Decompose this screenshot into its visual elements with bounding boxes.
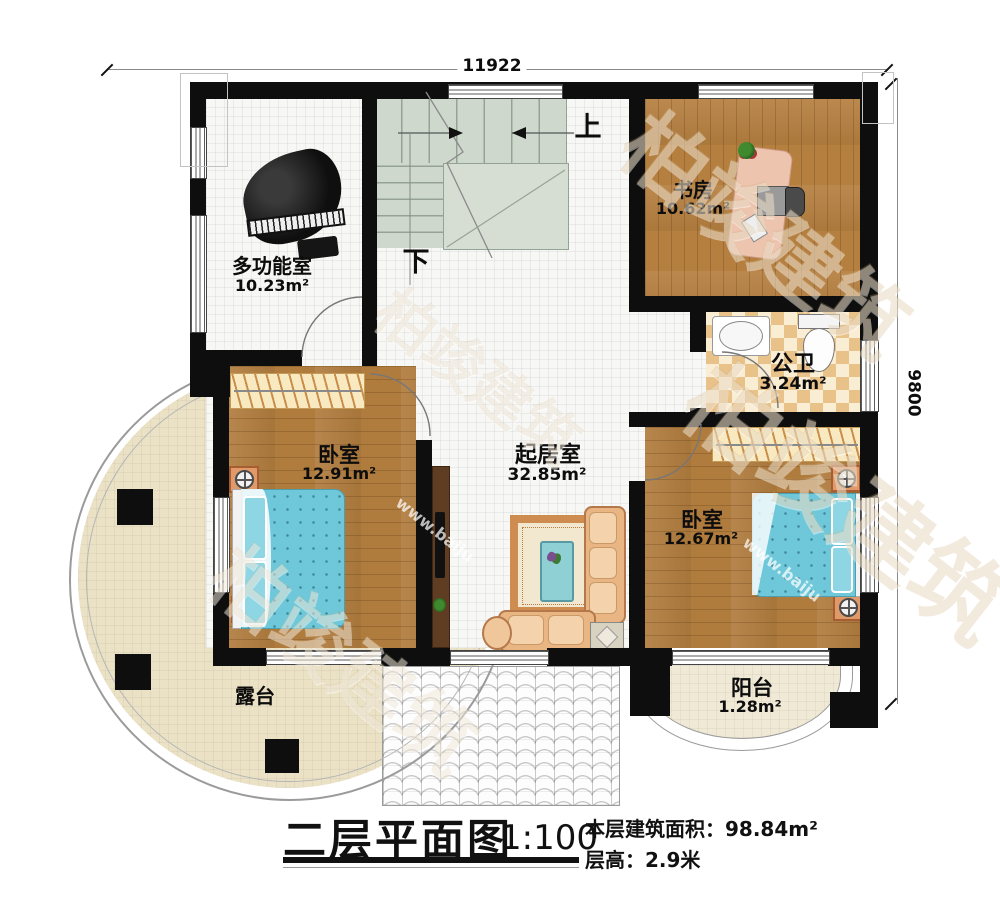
door-arcs-layer [0,0,1000,914]
stair-landing-diagonal [447,170,565,247]
room-area-living: 32.85m² [508,467,587,485]
stair-break-line [426,92,492,258]
door-arc [370,374,430,436]
dim-label-width: 11922 [457,58,526,76]
title-underline-thin [283,867,579,868]
floor-plan: 多功能室 10.23m² 书房 10.62m² 公卫 3.24m² 卧室 12.… [0,0,1000,914]
room-area-study: 10.62m² [656,201,730,218]
eave-line [180,73,228,167]
room-area-balcony: 1.28m² [718,699,781,716]
room-label-bedroom-right: 卧室 [681,509,723,531]
floor-height-label: 层高：2.9米 [585,844,700,873]
building-area-label: 本层建筑面积：98.84m² [585,813,818,842]
room-label-balcony: 阳台 [731,677,773,699]
stairs-down-label: 下 [403,249,430,277]
room-area-bedroom-right: 12.67m² [664,531,738,548]
room-label-bathroom: 公卫 [771,353,815,376]
stairs-up-label: 上 [575,114,602,142]
door-arc [645,424,701,480]
room-area-bathroom: 3.24m² [759,376,826,394]
dim-label-height: 9800 [904,364,922,421]
stair-arrow [512,127,526,139]
dim-line-right [897,78,898,704]
door-arc [302,297,362,357]
room-area-bedroom-left: 12.91m² [302,466,376,483]
eave-line [862,72,894,124]
stair-arrow [449,127,463,139]
room-label-study: 书房 [673,180,713,201]
scale-label: 1:100 [500,818,598,858]
room-label-bedroom-left: 卧室 [318,444,360,466]
room-label-multi-function: 多功能室 [232,256,312,277]
room-area-multi-function: 10.23m² [235,278,309,295]
room-label-terrace: 露台 [235,686,275,707]
room-label-living: 起居室 [515,444,581,467]
